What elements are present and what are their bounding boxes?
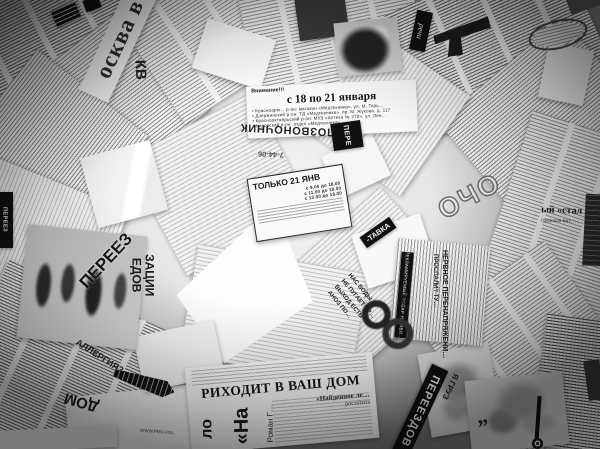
zacii-text: ЗАЦИИ <box>142 254 155 296</box>
nervnoe-headline: НЕРВНОЕ ПЕРЕНАПРЯЖЕНИ… <box>441 250 448 358</box>
kv-fragment: КВ <box>132 60 148 81</box>
stal-fragment: ый «стал <box>541 205 583 217</box>
pereez-left-banner: ПЕРЕЕЗ <box>0 192 13 248</box>
teapot-silhouette <box>333 17 402 77</box>
edov-text: ЕДОВ <box>129 254 142 296</box>
dark-edge-scrap <box>582 194 600 267</box>
pereez-left-text: ПЕРЕЕЗ <box>2 207 8 232</box>
thermometer-bulb <box>532 438 543 449</box>
gradskaya-fragment: градская бит… <box>541 218 576 225</box>
lo-fragment: ло <box>199 419 216 439</box>
teapot-photo <box>333 17 402 77</box>
prihodit-ad-scrap: РИХОДИТ В ВАШ ДОМ «Найденное ле… ростати… <box>185 352 380 449</box>
prospali-headline: ПРОСПАЛИ? ТУ… <box>432 254 438 307</box>
organizacii-fragment: ЗАЦИИ ЕДОВ <box>129 254 155 296</box>
phone-fragment: 7-44-06 <box>258 150 284 159</box>
prihodit-body-text <box>272 392 373 442</box>
pere-black-box: ПЕРЕ <box>330 120 363 151</box>
rechi-text: речи <box>415 23 427 40</box>
pere-box-text: ПЕРЕ <box>342 125 352 147</box>
newspaper-collage-photo: осква в КВ речи Внимание!!! с 18 по 21 я… <box>0 0 600 449</box>
na-fragment: «На <box>231 408 253 445</box>
